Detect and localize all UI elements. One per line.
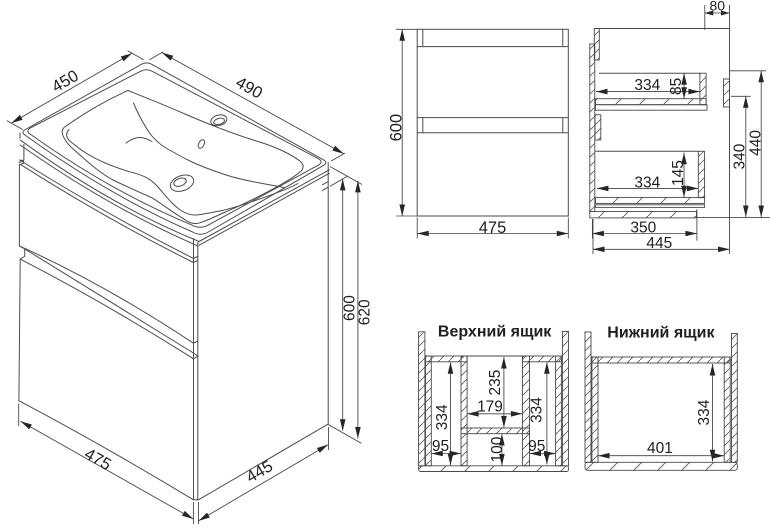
svg-text:334: 334 [434, 404, 451, 430]
svg-text:85: 85 [668, 78, 685, 95]
svg-text:95: 95 [432, 438, 449, 455]
svg-text:334: 334 [529, 397, 546, 423]
svg-text:334: 334 [634, 77, 660, 94]
svg-text:600: 600 [388, 114, 406, 142]
svg-text:80: 80 [710, 0, 726, 14]
svg-text:95: 95 [528, 438, 545, 455]
svg-text:350: 350 [630, 220, 656, 237]
svg-text:475: 475 [479, 219, 507, 237]
svg-text:445: 445 [646, 235, 672, 252]
svg-text:401: 401 [647, 440, 673, 457]
svg-text:620: 620 [357, 299, 374, 325]
svg-text:340: 340 [731, 143, 748, 169]
svg-text:440: 440 [747, 130, 764, 156]
svg-text:334: 334 [696, 399, 713, 425]
svg-text:Верхний ящик: Верхний ящик [438, 324, 552, 341]
svg-text:334: 334 [634, 174, 660, 191]
svg-text:145: 145 [670, 160, 687, 186]
svg-text:100: 100 [489, 436, 506, 462]
svg-text:179: 179 [477, 399, 503, 416]
svg-text:Нижний ящик: Нижний ящик [607, 324, 715, 341]
svg-text:235: 235 [487, 370, 504, 396]
